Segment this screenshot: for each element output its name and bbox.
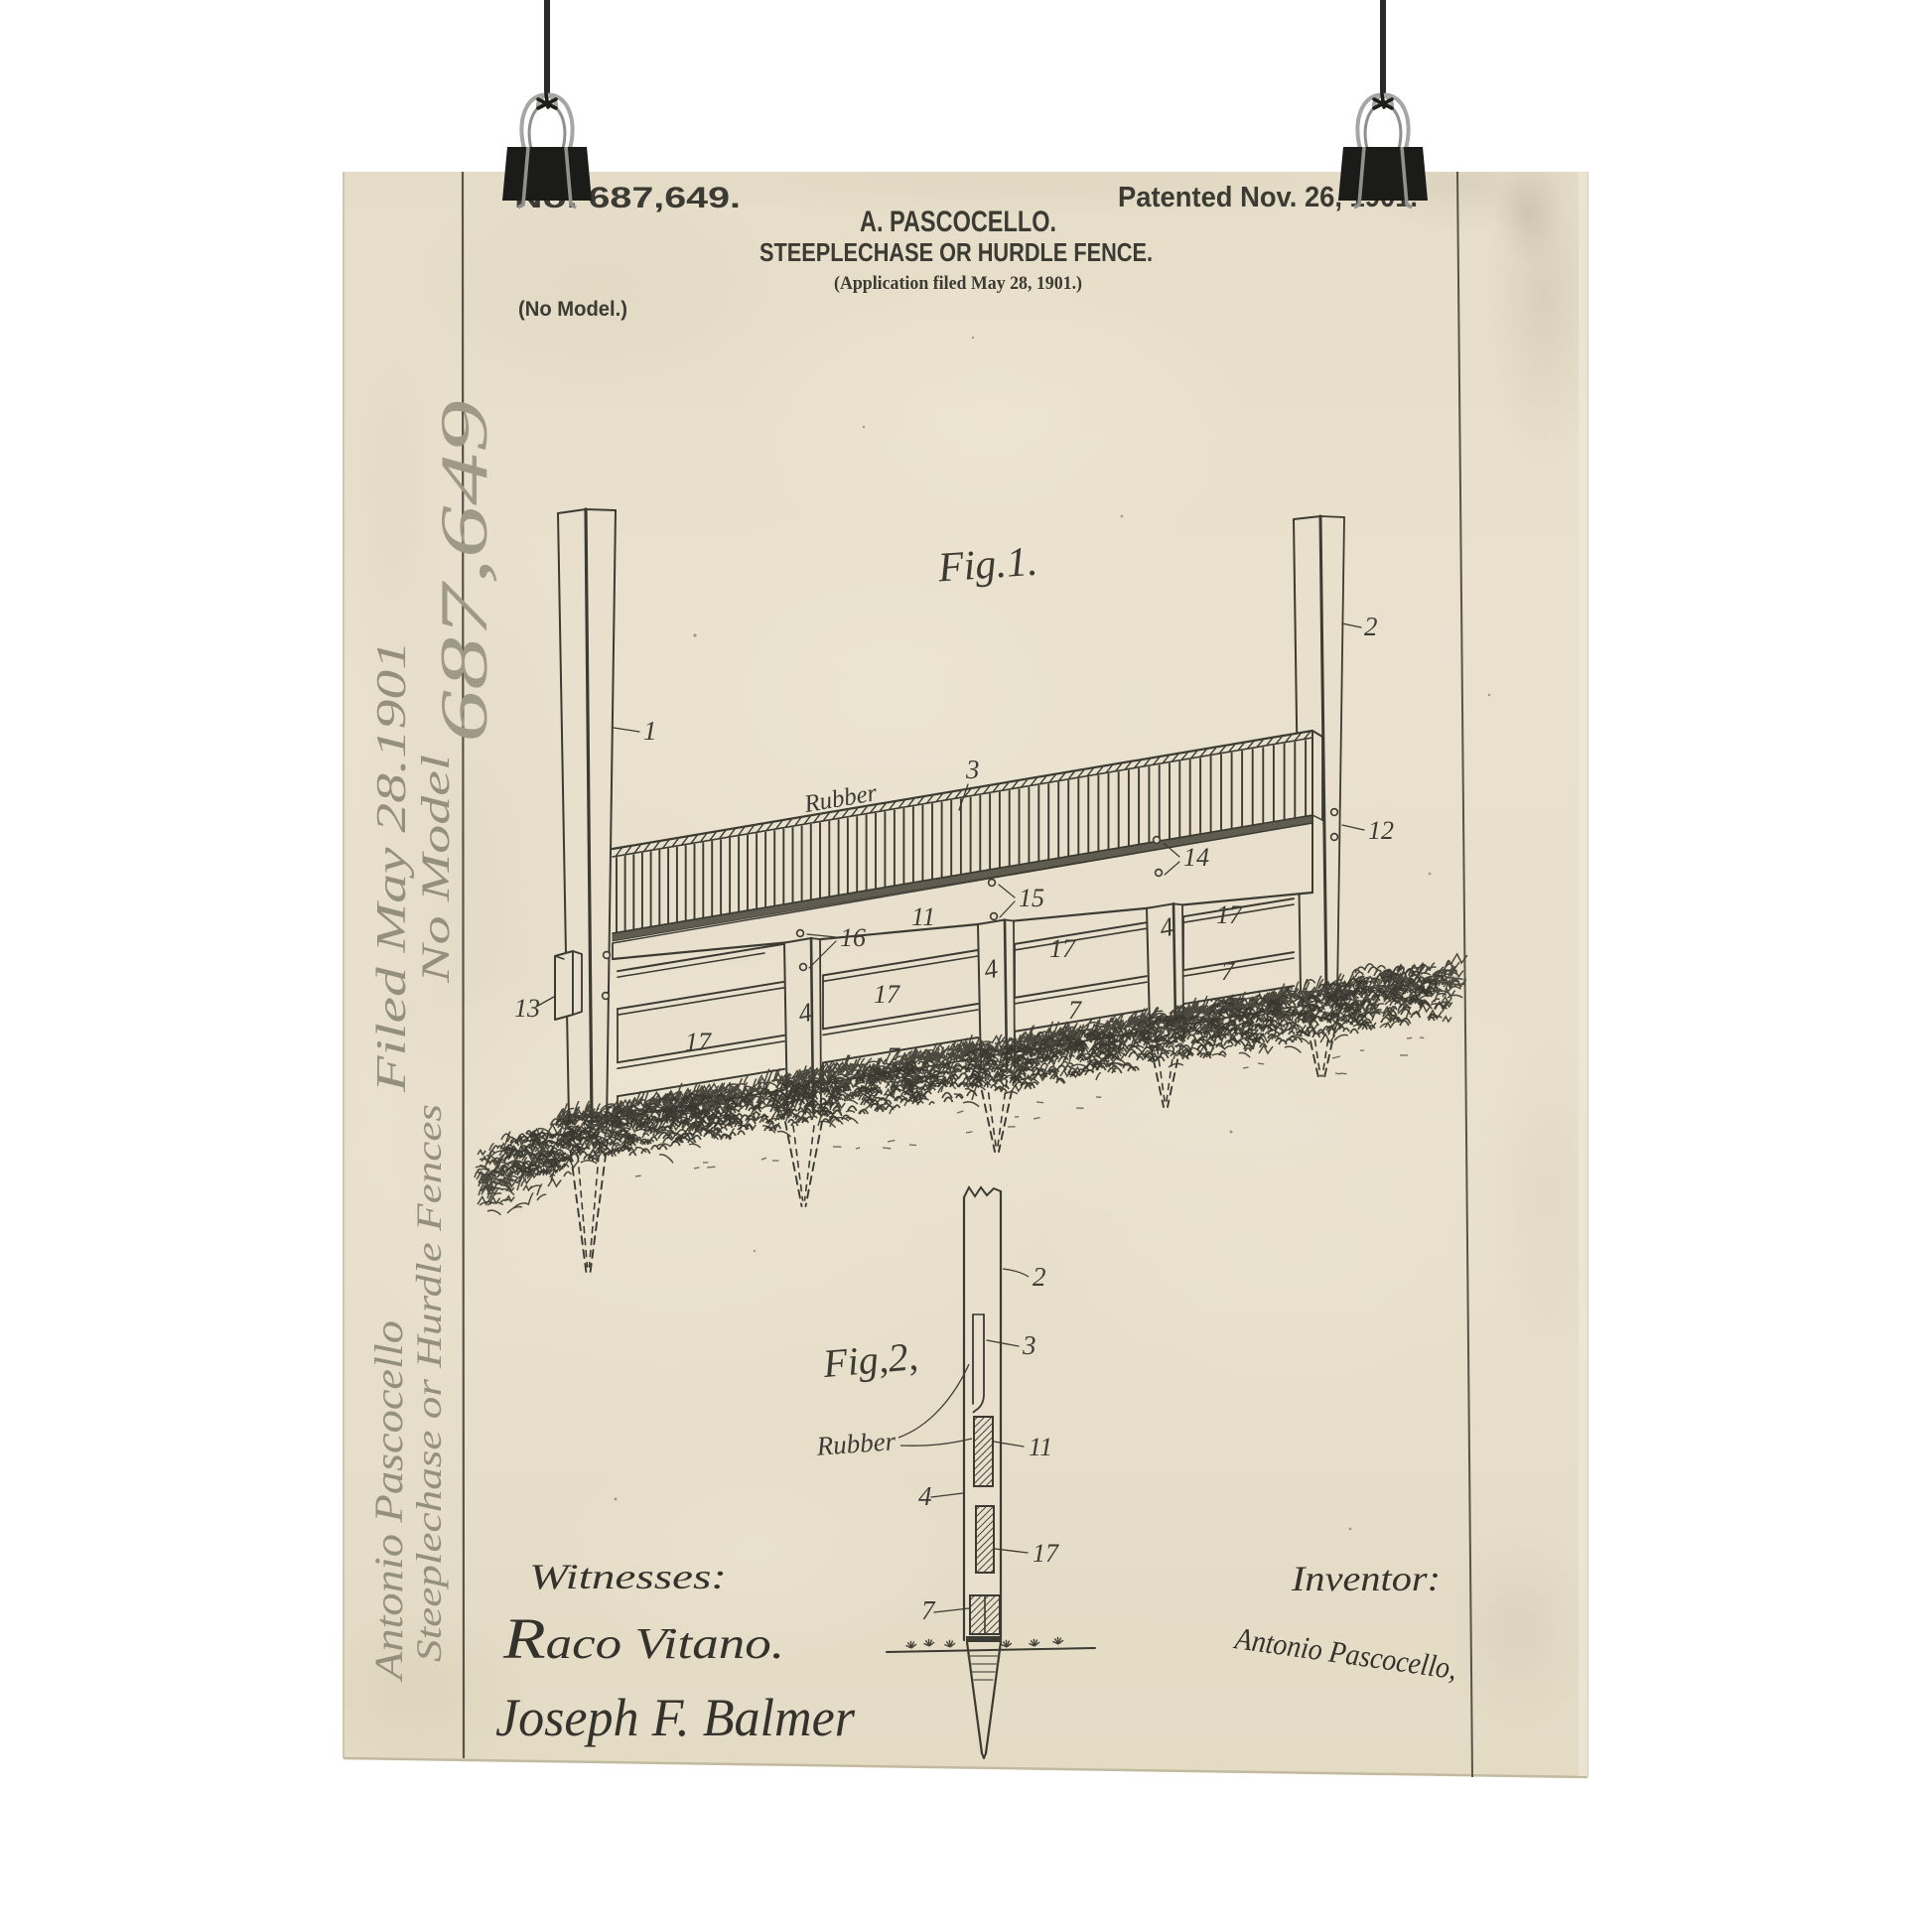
svg-text:No Model: No Model bbox=[413, 755, 458, 984]
svg-text:3: 3 bbox=[965, 755, 980, 784]
svg-text:13: 13 bbox=[514, 994, 540, 1023]
svg-text:7: 7 bbox=[921, 1595, 936, 1625]
svg-text:17: 17 bbox=[1033, 1539, 1059, 1568]
svg-text:Fig.1.: Fig.1. bbox=[935, 539, 1038, 592]
svg-text:Fig,2,: Fig,2, bbox=[820, 1333, 919, 1386]
svg-text:Inventor:: Inventor: bbox=[1291, 1559, 1441, 1598]
svg-text:STEEPLECHASE OR HURDLE FENCE.: STEEPLECHASE OR HURDLE FENCE. bbox=[759, 237, 1153, 267]
svg-text:(No Model.): (No Model.) bbox=[518, 298, 627, 321]
svg-text:Filed May 28.1901: Filed May 28.1901 bbox=[369, 640, 415, 1093]
svg-text:15: 15 bbox=[1019, 884, 1044, 912]
svg-text:12: 12 bbox=[1368, 816, 1394, 845]
svg-text:16: 16 bbox=[840, 923, 866, 952]
svg-text:3: 3 bbox=[1022, 1330, 1036, 1360]
svg-text:7: 7 bbox=[692, 1089, 706, 1118]
svg-text:(Application filed May 28, 190: (Application filed May 28, 1901.) bbox=[834, 273, 1082, 294]
svg-text:4: 4 bbox=[918, 1481, 932, 1511]
svg-text:Steeplechase or Hurdle Fences: Steeplechase or Hurdle Fences bbox=[409, 1104, 449, 1662]
svg-text:11: 11 bbox=[1029, 1433, 1052, 1461]
svg-text:Antonio Pascocello: Antonio Pascocello bbox=[366, 1320, 411, 1683]
svg-text:14: 14 bbox=[1183, 843, 1209, 872]
svg-text:A. PASCOCELLO.: A. PASCOCELLO. bbox=[860, 206, 1056, 238]
svg-text:Rubber: Rubber bbox=[815, 1426, 897, 1461]
svg-text:687,649: 687,649 bbox=[426, 400, 501, 743]
svg-text:17: 17 bbox=[685, 1028, 712, 1056]
svg-text:Witnesses:: Witnesses: bbox=[529, 1557, 727, 1596]
svg-text:7: 7 bbox=[1068, 996, 1082, 1025]
svg-text:2: 2 bbox=[1364, 612, 1378, 641]
svg-text:2: 2 bbox=[1033, 1262, 1046, 1292]
svg-text:Joseph F. Balmer: Joseph F. Balmer bbox=[495, 1688, 856, 1747]
svg-text:17: 17 bbox=[1049, 934, 1076, 963]
svg-text:7: 7 bbox=[887, 1042, 900, 1071]
svg-text:1: 1 bbox=[643, 716, 657, 746]
svg-text:17: 17 bbox=[874, 980, 900, 1009]
svg-text:7: 7 bbox=[1221, 957, 1235, 986]
svg-text:17: 17 bbox=[1216, 900, 1243, 929]
svg-text:11: 11 bbox=[911, 902, 935, 931]
